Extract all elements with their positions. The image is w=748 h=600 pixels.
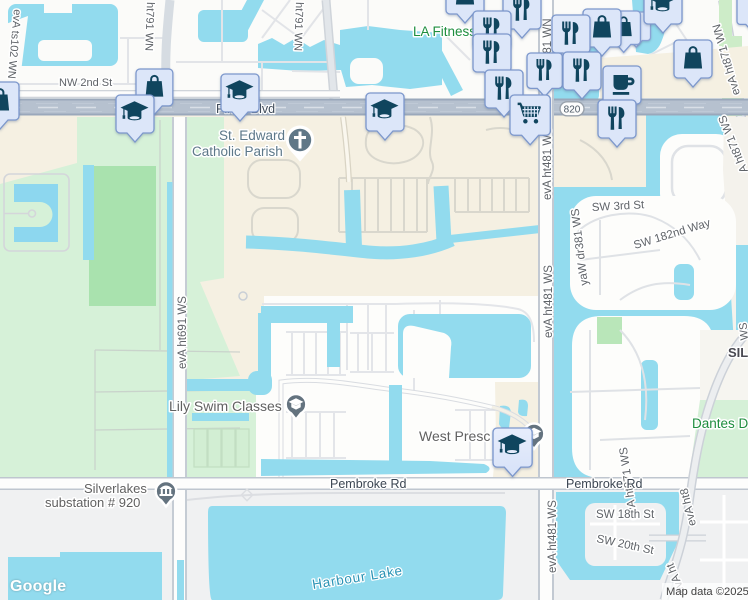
svg-text:evA ht481 WS: evA ht481 WS — [542, 127, 554, 200]
svg-text:substation # 920: substation # 920 — [45, 495, 140, 510]
svg-text:Pembroke Rd: Pembroke Rd — [566, 477, 642, 491]
svg-text:Map data ©2025: Map data ©2025 — [666, 586, 748, 598]
svg-text:evA ht691 WS: evA ht691 WS — [177, 296, 189, 369]
svg-text:ht791 WN: ht791 WN — [291, 2, 305, 51]
svg-text:820: 820 — [564, 105, 581, 116]
svg-text:LA Fitness: LA Fitness — [413, 24, 476, 39]
svg-text:Catholic Parish: Catholic Parish — [192, 144, 283, 159]
svg-text:Silverlakes: Silverlakes — [84, 481, 147, 496]
svg-text:WS: WS — [737, 322, 748, 341]
svg-text:Lily Swim Classes: Lily Swim Classes — [169, 398, 282, 414]
svg-text:SIL: SIL — [728, 345, 748, 360]
svg-text:SW 18th St: SW 18th St — [596, 509, 655, 521]
svg-text:evA ht481 WS: evA ht481 WS — [547, 500, 559, 573]
svg-text:Google: Google — [10, 578, 66, 595]
svg-text:Pembroke Rd: Pembroke Rd — [330, 477, 406, 491]
svg-text:West Presc: West Presc — [419, 428, 490, 444]
svg-text:evA ht481 WS: evA ht481 WS — [543, 265, 555, 338]
svg-text:ht791 WN: ht791 WN — [142, 2, 156, 51]
svg-text:Dantes D: Dantes D — [692, 416, 748, 431]
svg-text:NW 2nd St: NW 2nd St — [59, 77, 112, 89]
svg-text:St. Edward: St. Edward — [219, 128, 285, 143]
